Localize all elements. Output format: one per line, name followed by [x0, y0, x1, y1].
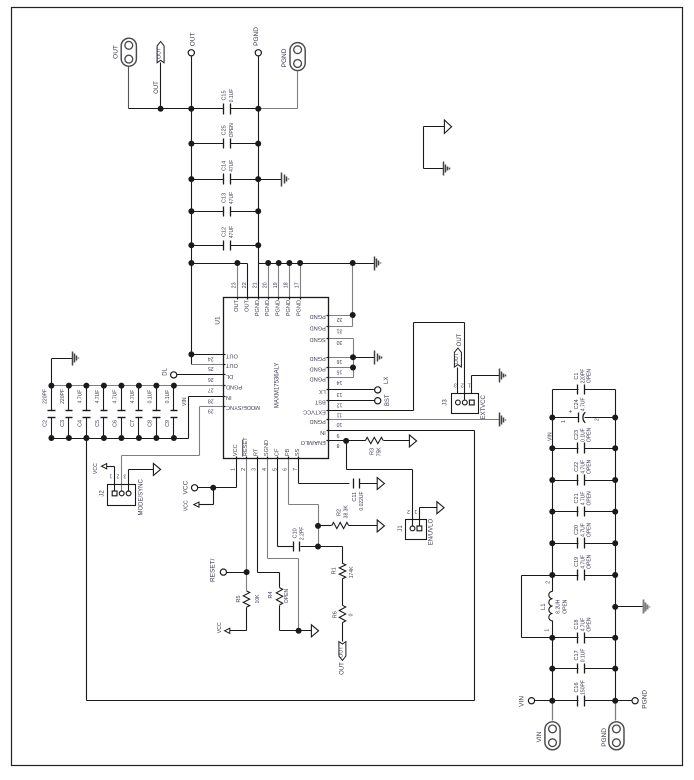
svg-text:OPEN: OPEN	[586, 523, 592, 538]
svg-text:4.7UF: 4.7UF	[95, 390, 101, 404]
svg-text:DL: DL	[162, 367, 168, 375]
svg-text:EXTVCC: EXTVCC	[303, 408, 326, 414]
svg-text:VIN: VIN	[182, 397, 188, 406]
svg-text:C2: C2	[42, 420, 48, 427]
svg-text:PGND: PGND	[297, 300, 303, 316]
svg-text:6: 6	[283, 468, 289, 471]
svg-text:5: 5	[272, 468, 278, 471]
svg-text:J3: J3	[443, 399, 449, 406]
svg-text:+: +	[568, 409, 574, 413]
svg-text:MODE/SYNC: MODE/SYNC	[226, 404, 260, 410]
svg-text:OUT: OUT	[338, 646, 344, 658]
svg-text:LX: LX	[319, 388, 326, 394]
svg-text:20: 20	[263, 282, 269, 288]
svg-text:2: 2	[116, 472, 119, 478]
svg-text:1: 1	[231, 468, 237, 471]
svg-text:PGND: PGND	[310, 418, 326, 424]
svg-text:174K: 174K	[349, 566, 355, 578]
svg-text:L1: L1	[541, 603, 547, 610]
svg-text:4.7UF: 4.7UF	[77, 390, 83, 404]
svg-text:PGND: PGND	[310, 365, 326, 371]
svg-text:1: 1	[414, 508, 417, 514]
svg-text:1: 1	[109, 472, 112, 478]
svg-text:J1: J1	[398, 525, 404, 532]
svg-text:OPEN: OPEN	[586, 617, 592, 632]
svg-text:3: 3	[123, 472, 126, 478]
svg-text:C12: C12	[222, 227, 228, 237]
svg-text:10K: 10K	[255, 594, 261, 604]
svg-text:23: 23	[232, 282, 238, 288]
svg-text:ENA/MLO: ENA/MLO	[300, 439, 326, 445]
svg-text:J2: J2	[99, 490, 105, 497]
svg-text:OPEN: OPEN	[284, 589, 290, 604]
svg-text:C10: C10	[293, 528, 299, 538]
svg-text:C15: C15	[222, 90, 228, 100]
svg-text:28: 28	[208, 397, 214, 403]
svg-text:OPEN: OPEN	[586, 428, 592, 443]
svg-text:0.1UF: 0.1UF	[229, 89, 235, 103]
svg-text:16: 16	[336, 358, 342, 364]
svg-text:SGND: SGND	[310, 336, 326, 342]
svg-text:47UF: 47UF	[229, 192, 235, 204]
svg-text:OUT: OUT	[225, 352, 237, 358]
svg-text:2: 2	[241, 468, 247, 471]
svg-text:PGND: PGND	[310, 376, 326, 382]
svg-text:4: 4	[262, 468, 268, 471]
svg-text:OUT: OUT	[234, 299, 240, 311]
svg-text:R2: R2	[337, 509, 343, 516]
svg-text:VCC: VCC	[93, 463, 99, 474]
svg-text:OUT: OUT	[156, 47, 162, 59]
svg-text:VCC: VCC	[233, 444, 239, 456]
svg-text:PGND: PGND	[286, 300, 292, 316]
svg-text:OPEN: OPEN	[586, 459, 592, 474]
svg-text:C13: C13	[222, 193, 228, 203]
svg-text:OUT: OUT	[225, 362, 237, 368]
svg-text:4.7UF: 4.7UF	[130, 390, 136, 404]
svg-text:24: 24	[208, 355, 214, 361]
svg-text:VCC: VCC	[184, 500, 190, 511]
svg-text:OUT: OUT	[112, 45, 119, 59]
svg-text:BST: BST	[385, 394, 391, 406]
svg-text:18: 18	[284, 282, 290, 288]
svg-text:15: 15	[336, 368, 342, 374]
svg-text:C4: C4	[77, 420, 83, 427]
svg-text:C3: C3	[60, 420, 66, 427]
svg-text:RT: RT	[254, 448, 260, 456]
svg-text:VIN: VIN	[519, 696, 526, 707]
svg-text:31: 31	[336, 327, 342, 333]
svg-text:22: 22	[242, 282, 248, 288]
svg-text:EN/UVLO: EN/UVLO	[428, 519, 434, 546]
svg-text:4.7UF: 4.7UF	[112, 390, 118, 404]
svg-text:RESET/: RESET/	[210, 558, 217, 582]
svg-text:11: 11	[336, 411, 341, 417]
svg-text:25: 25	[208, 365, 214, 371]
svg-text:C9: C9	[165, 420, 171, 427]
svg-text:10: 10	[336, 421, 342, 427]
svg-text:150PF: 150PF	[580, 680, 586, 695]
svg-text:PGND: PGND	[265, 300, 271, 316]
svg-text:13: 13	[336, 391, 342, 397]
svg-text:0.1UF: 0.1UF	[580, 649, 586, 663]
svg-text:1: 1	[545, 629, 551, 632]
svg-text:PGND: PGND	[310, 313, 326, 319]
svg-text:17: 17	[294, 282, 300, 288]
svg-text:R4: R4	[268, 592, 274, 599]
svg-text:MAXM17536ALY: MAXM17536ALY	[275, 363, 281, 409]
svg-text:VCC: VCC	[183, 480, 190, 494]
svg-text:PGND: PGND	[255, 300, 261, 316]
svg-text:C25: C25	[222, 125, 228, 135]
svg-text:4.7UF: 4.7UF	[580, 397, 586, 411]
svg-text:PGND: PGND	[310, 355, 326, 361]
svg-text:DL: DL	[226, 373, 233, 379]
svg-text:7: 7	[293, 468, 299, 471]
svg-text:2.2PF: 2.2PF	[299, 527, 305, 540]
svg-text:OPEN: OPEN	[586, 491, 592, 506]
svg-text:26: 26	[208, 376, 214, 382]
svg-text:SGND: SGND	[264, 440, 270, 456]
svg-text:PGND: PGND	[226, 383, 242, 389]
svg-text:CF: CF	[274, 448, 280, 456]
svg-text:1: 1	[561, 420, 567, 423]
svg-text:2: 2	[407, 508, 410, 514]
svg-text:U1: U1	[214, 316, 221, 325]
svg-text:RESET: RESET	[243, 437, 249, 456]
svg-text:C7: C7	[130, 420, 136, 427]
svg-text:21: 21	[253, 282, 259, 288]
svg-text:OPEN: OPEN	[586, 369, 592, 384]
svg-text:2: 2	[461, 381, 464, 387]
svg-text:OUT: OUT	[454, 352, 460, 364]
svg-text:9: 9	[336, 432, 339, 438]
svg-text:PGND: PGND	[601, 728, 608, 747]
svg-text:EXTVCC: EXTVCC	[481, 394, 487, 419]
svg-text:8: 8	[336, 442, 339, 448]
svg-text:R6: R6	[333, 611, 339, 618]
svg-text:BST: BST	[314, 399, 325, 405]
svg-text:PGND: PGND	[275, 300, 281, 316]
svg-text:75K: 75K	[377, 447, 383, 457]
svg-text:OUT: OUT	[154, 81, 160, 94]
svg-text:OUT: OUT	[189, 33, 196, 47]
svg-text:OUT: OUT	[244, 299, 250, 311]
svg-text:OUT: OUT	[340, 662, 346, 675]
svg-text:SS: SS	[295, 448, 301, 456]
svg-text:27: 27	[208, 387, 214, 393]
svg-text:PGND: PGND	[253, 27, 260, 46]
svg-text:OPEN: OPEN	[229, 123, 235, 138]
svg-text:R3: R3	[369, 448, 375, 455]
svg-text:R1: R1	[332, 567, 338, 574]
svg-text:29: 29	[208, 407, 214, 413]
svg-text:OUT: OUT	[457, 333, 463, 346]
svg-text:3: 3	[252, 468, 258, 471]
svg-text:19: 19	[273, 282, 279, 288]
svg-text:32: 32	[336, 316, 342, 322]
svg-text:VIN: VIN	[548, 432, 554, 441]
svg-text:LX: LX	[384, 377, 390, 384]
svg-text:2: 2	[594, 418, 600, 421]
svg-text:47UF: 47UF	[229, 226, 235, 238]
svg-text:C5: C5	[95, 420, 101, 427]
svg-text:IN: IN	[320, 429, 326, 435]
svg-text:2: 2	[546, 581, 552, 584]
svg-text:14: 14	[336, 379, 342, 385]
svg-text:12: 12	[336, 402, 342, 408]
svg-text:1: 1	[468, 381, 471, 387]
svg-text:8.2UH: 8.2UH	[555, 599, 561, 614]
svg-text:C11: C11	[352, 492, 358, 502]
svg-text:220PF: 220PF	[60, 389, 66, 404]
svg-text:FB: FB	[285, 449, 291, 456]
svg-text:C6: C6	[112, 420, 118, 427]
svg-text:VIN: VIN	[536, 731, 543, 742]
svg-text:0: 0	[349, 613, 355, 616]
svg-text:0.1UF: 0.1UF	[165, 390, 171, 404]
svg-text:220PF: 220PF	[42, 389, 48, 404]
svg-text:30: 30	[336, 339, 342, 345]
svg-text:MODE/SYNC: MODE/SYNC	[138, 478, 144, 515]
svg-text:OPEN: OPEN	[586, 554, 592, 569]
svg-text:47UF: 47UF	[229, 160, 235, 172]
svg-text:IN: IN	[226, 394, 232, 400]
svg-text:3: 3	[454, 381, 457, 387]
svg-text:38.3K: 38.3K	[343, 505, 349, 519]
svg-text:OPEN: OPEN	[563, 599, 569, 614]
svg-text:0.022UF: 0.022UF	[359, 491, 365, 510]
svg-text:0.1UF: 0.1UF	[147, 390, 153, 404]
svg-text:C14: C14	[222, 161, 228, 171]
svg-text:C8: C8	[147, 420, 153, 427]
svg-text:R5: R5	[236, 596, 242, 603]
svg-text:PGND: PGND	[310, 324, 326, 330]
svg-text:PGND: PGND	[642, 690, 649, 709]
svg-text:PGND: PGND	[281, 48, 288, 67]
svg-text:VCC: VCC	[217, 622, 223, 633]
